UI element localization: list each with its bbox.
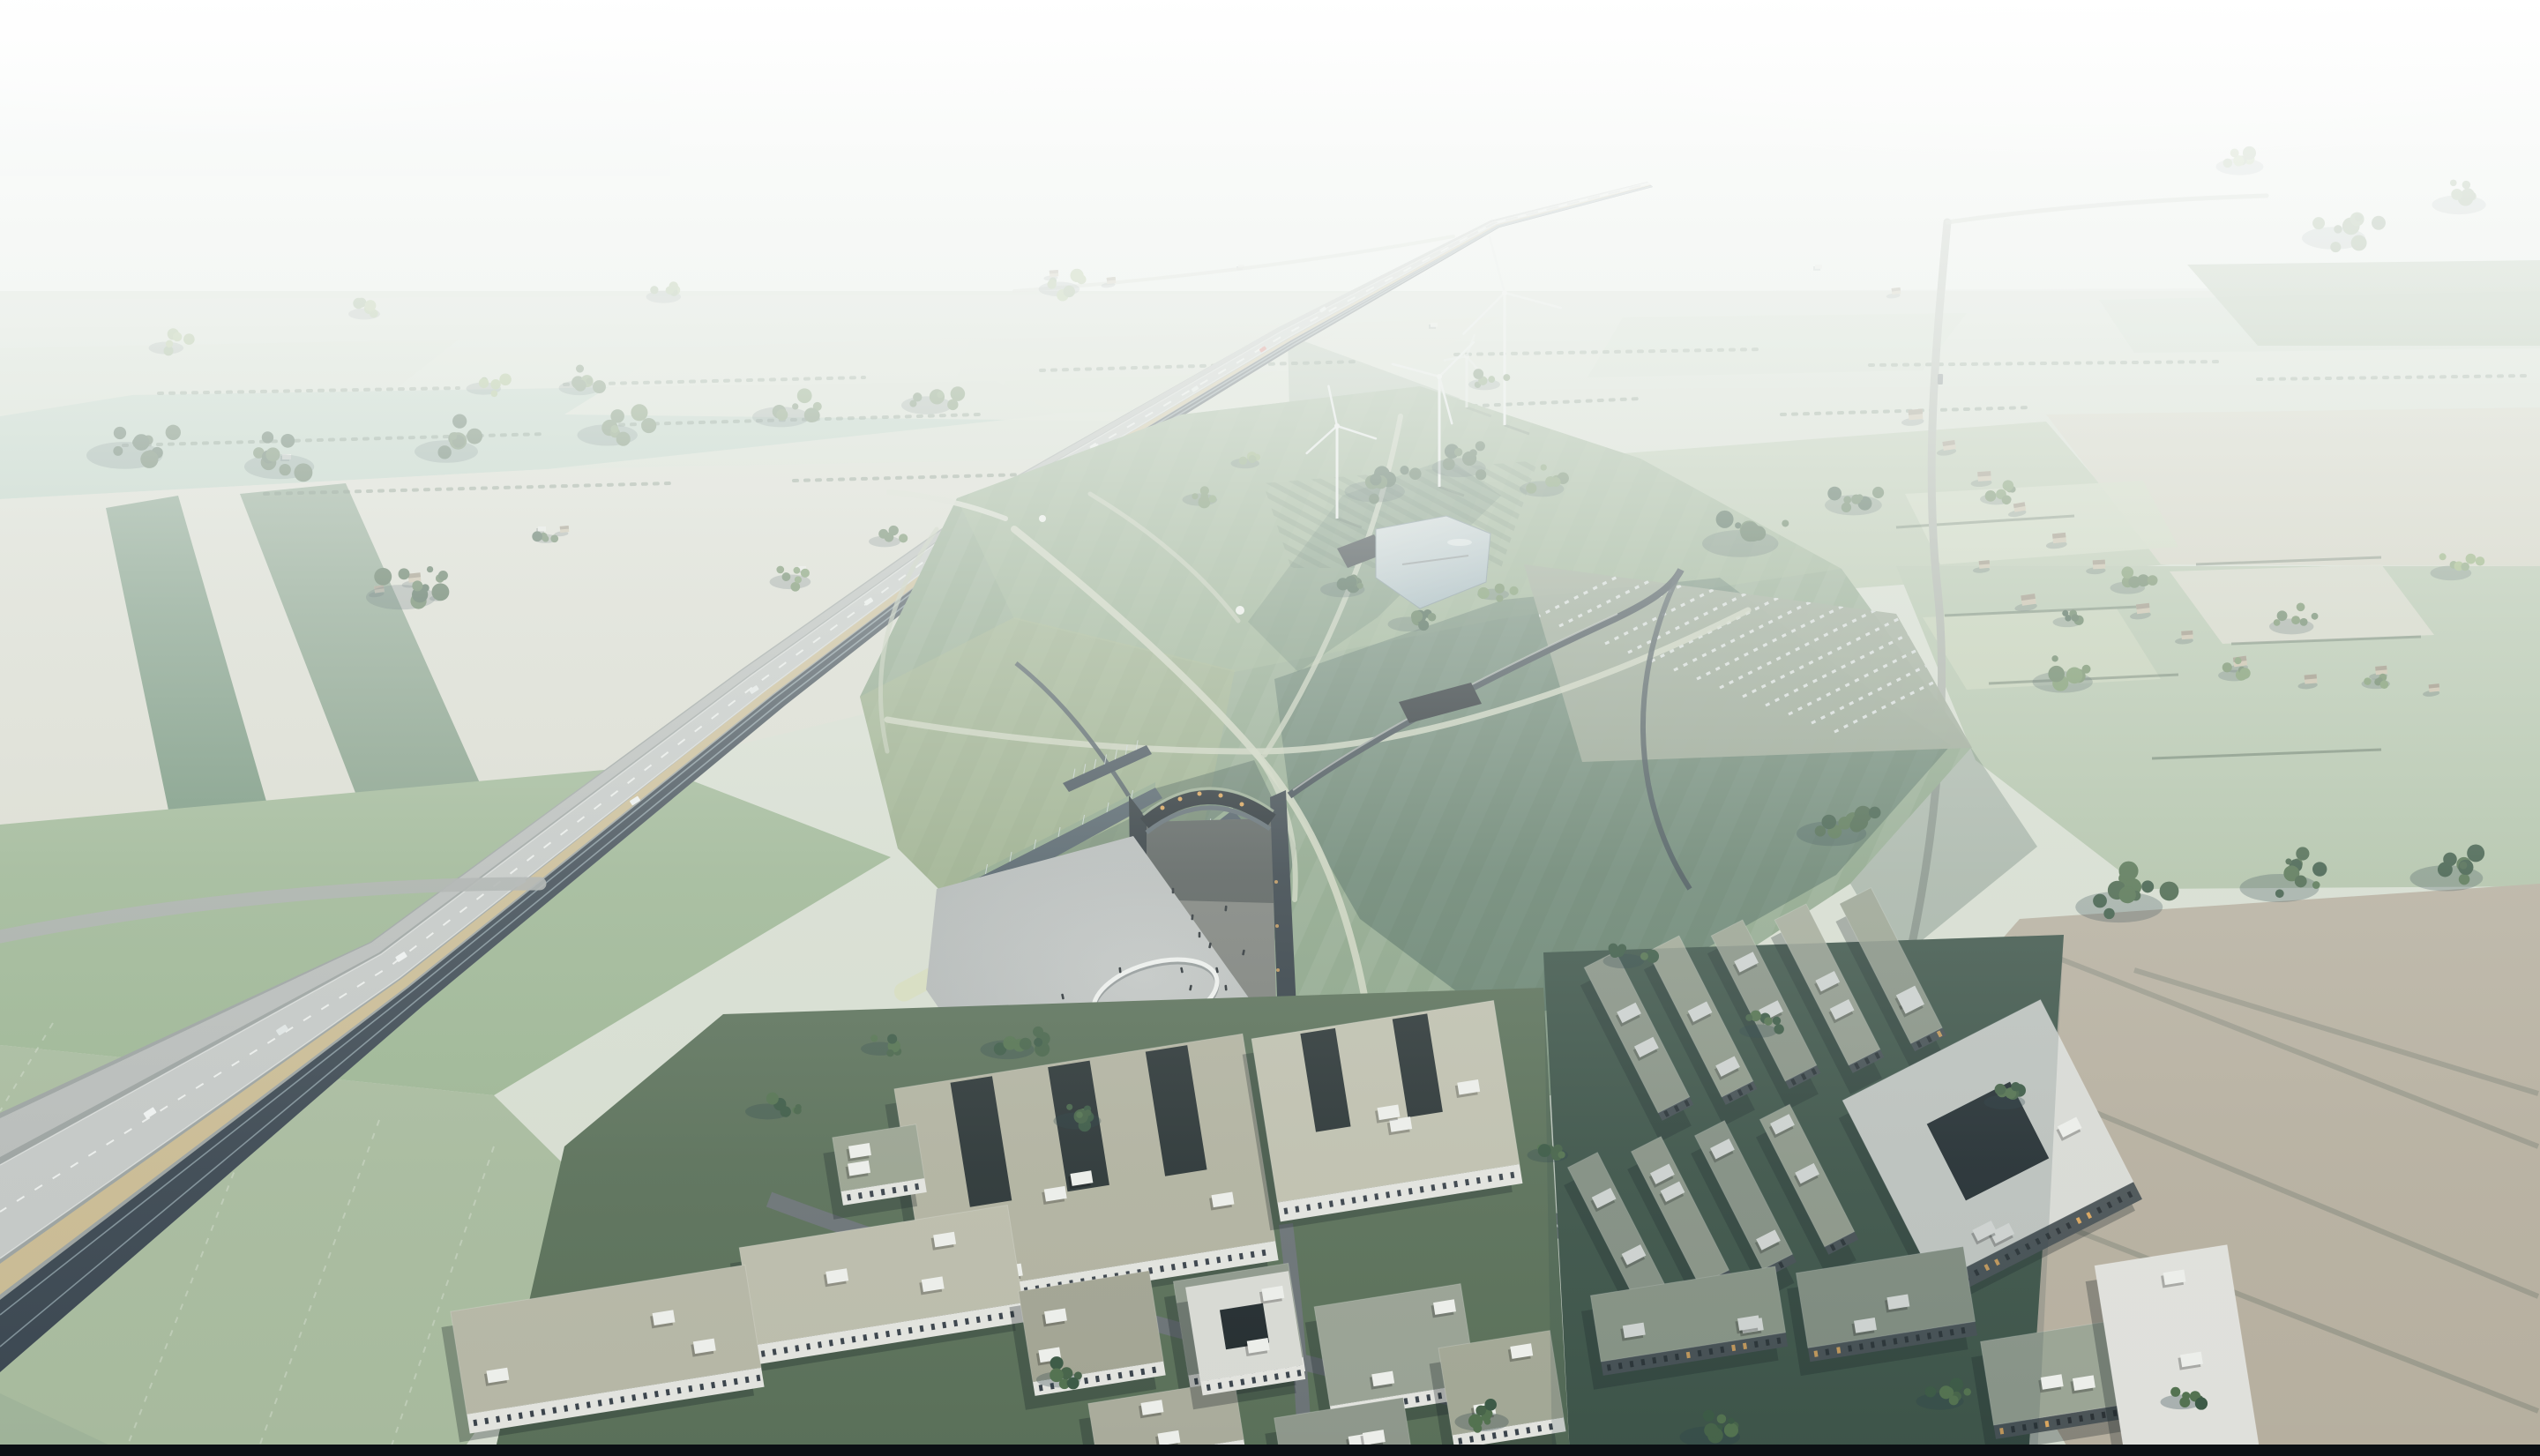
letterbox-bar xyxy=(0,1445,2540,1456)
aerial-render: Aerial dusk rendering of a rural masterp… xyxy=(0,0,2540,1456)
render-stage: Aerial dusk rendering of a rural masterp… xyxy=(0,0,2540,1456)
haze-overlay xyxy=(0,0,2540,1456)
